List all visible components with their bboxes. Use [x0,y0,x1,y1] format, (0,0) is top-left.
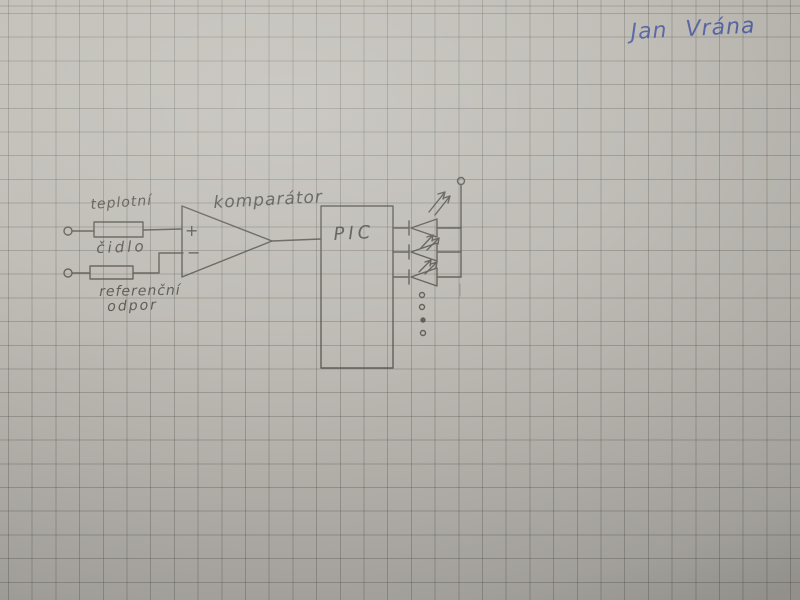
supply-terminal-icon [458,178,465,297]
continuation-dots-icon [420,293,426,336]
label-reference-line2: odpor [107,297,158,315]
reference-resistor-icon [90,253,183,279]
input-terminal-top-icon [64,227,94,235]
label-mcu: PIC [333,222,375,245]
label-sensor-line2: čidlo [96,237,147,257]
led-2-icon [393,235,461,261]
led-1-icon [393,192,461,237]
graph-paper-photo: teplotní čidlo referenční odpor komparát… [0,0,800,600]
led-3-icon [393,260,461,286]
comparator-triangle-icon [182,206,321,277]
temperature-sensor-resistor-icon [94,222,182,237]
input-terminal-bottom-icon [64,269,90,277]
comparator-minus-input-label: − [187,243,200,262]
comparator-plus-input-label: + [185,221,198,240]
